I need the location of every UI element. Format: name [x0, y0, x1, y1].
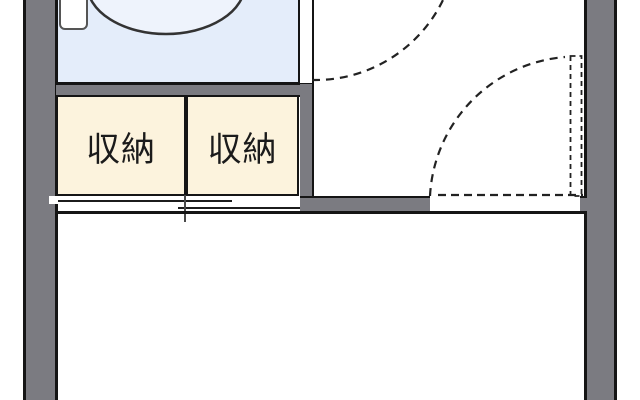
room-bottom	[58, 213, 584, 400]
closet-right-label: 収納	[208, 124, 278, 167]
doorway-nib-wall	[580, 196, 587, 211]
bottom-room-top-line	[55, 211, 586, 214]
sliding-door-panel-line-upper	[58, 200, 232, 202]
bathroom-door-opening	[300, 0, 314, 84]
closet-left: 収納	[56, 95, 186, 196]
room-top-right	[314, 0, 584, 196]
bathroom-bottom-wall	[56, 83, 314, 97]
sliding-door-panel-line-lower	[178, 207, 302, 209]
floorplan: 収納 収納	[0, 0, 640, 400]
right-wall	[584, 0, 617, 400]
sliding-door-wall-notch	[49, 196, 58, 204]
mid-vertical-wall	[300, 84, 314, 198]
closet-sliding-door	[58, 196, 302, 212]
sliding-door-center-tick	[184, 195, 186, 222]
closet-right: 収納	[186, 95, 299, 196]
closet-left-label: 収納	[86, 124, 156, 167]
right-room-bottom-wall	[300, 196, 430, 211]
bathroom-area	[56, 0, 300, 84]
